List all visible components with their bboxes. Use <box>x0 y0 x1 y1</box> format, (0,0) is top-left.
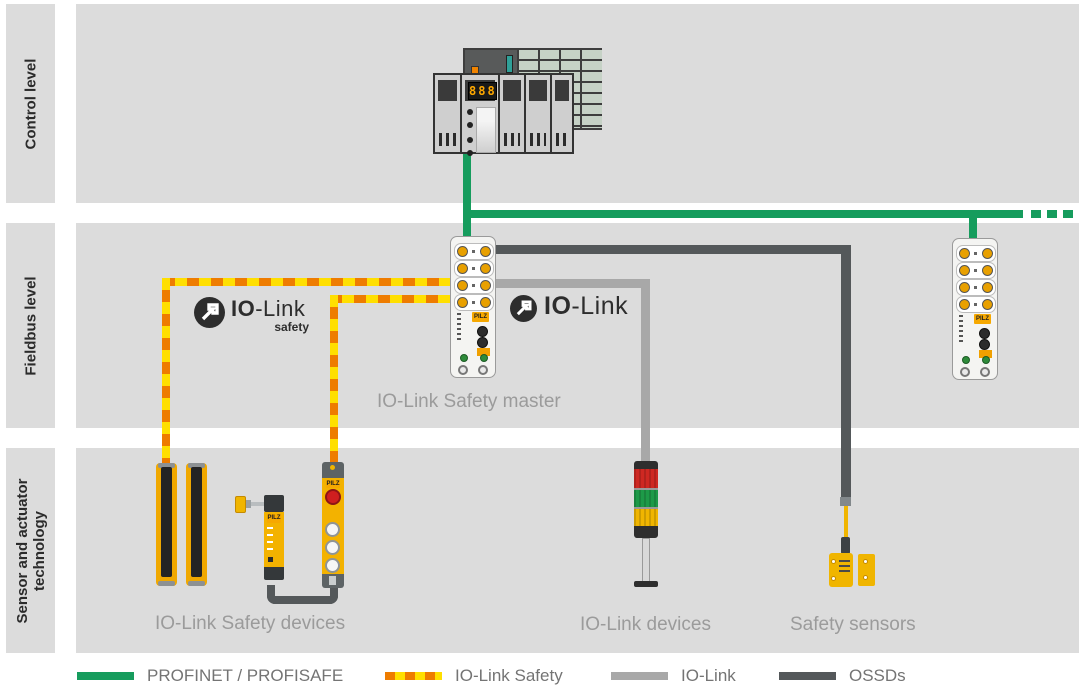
fieldbus-level-label: Fieldbus level <box>22 228 39 423</box>
sensor-mount-hole <box>863 559 868 564</box>
master-bottom-connector <box>478 365 488 375</box>
profinet-trunk-dash-1 <box>1031 210 1041 218</box>
m12-port <box>959 248 970 259</box>
m12-port <box>959 265 970 276</box>
port-glyph <box>472 250 475 253</box>
iolink-safety-line1-vertical <box>162 278 170 464</box>
plc-seven-segment-display: 888 <box>468 82 497 100</box>
master-bottom-connector <box>960 367 970 377</box>
plc-module-header <box>555 80 569 101</box>
estop-white-button <box>325 558 340 573</box>
master-green-port <box>460 354 468 362</box>
plc-front-module-io <box>500 75 526 152</box>
plc-front-module-cpu: 888 <box>462 75 500 152</box>
plc-vent-slots <box>530 133 546 146</box>
plc-vent-slots <box>504 133 520 146</box>
estop-top-cap <box>322 462 344 478</box>
safety-io-module: PILZ <box>264 495 284 585</box>
iolink-safety-logo-sub: safety <box>274 320 309 334</box>
master-rotary-switch <box>477 337 488 348</box>
estop-pushbutton-unit: PILZ <box>322 462 344 588</box>
safety-sensors-label: Safety sensors <box>790 614 916 636</box>
control-level-label: Control level <box>22 6 39 201</box>
estop-red-button <box>325 489 341 505</box>
master-green-port <box>480 354 488 362</box>
estop-cap-led <box>330 465 335 470</box>
signal-tower-base <box>634 526 658 538</box>
m12-port <box>480 263 491 274</box>
m12-port <box>982 299 993 310</box>
iolink-safety-master: PILZ <box>450 236 496 378</box>
plc-back-module <box>580 50 602 128</box>
profinet-trunk-dash-2 <box>1047 210 1057 218</box>
safety-devices-label: IO-Link Safety devices <box>155 613 345 635</box>
plc-module-header: 888 <box>465 80 495 101</box>
m12-port <box>480 297 491 308</box>
light-curtain-emitter <box>186 463 207 586</box>
iolink-logo: IO-Link <box>510 292 630 324</box>
sensor-cable-ring <box>840 497 851 506</box>
master-rotary-switch <box>979 328 990 339</box>
safety-master-label: IO-Link Safety master <box>377 391 561 413</box>
iolink-legend-label: IO-Link <box>681 666 736 686</box>
sensor-label-line <box>839 560 850 562</box>
sensor-label-line <box>839 565 850 567</box>
iolink-safety-logo-icon <box>194 297 225 328</box>
signal-tower-foot <box>634 581 658 587</box>
profinet-legend-swatch <box>77 672 134 680</box>
plc-front-module-io <box>526 75 552 152</box>
master-port-row <box>454 260 494 277</box>
port-glyph <box>974 303 977 306</box>
sidebar-band-control: Control level <box>6 4 55 203</box>
m12-port <box>959 299 970 310</box>
master-port-row <box>454 277 494 294</box>
module-head <box>264 495 284 512</box>
master-rotary-switch <box>979 339 990 350</box>
master-port-row <box>956 279 996 296</box>
ossd-line-horizontal <box>480 245 851 254</box>
profinet-branch-line <box>969 218 977 239</box>
plc-cpu-button <box>467 109 473 115</box>
signal-tower-cap <box>634 461 658 469</box>
ossd-legend-label: OSSDs <box>849 666 906 686</box>
master-bottom-connector <box>980 367 990 377</box>
m12-port <box>457 263 468 274</box>
iolink-safety-master-secondary: PILZ <box>952 238 998 380</box>
plc-vent-slots <box>439 133 457 146</box>
estop-bottom-cap <box>322 574 344 588</box>
plc-rack-front: 888 <box>433 73 574 154</box>
pilz-brand-badge: PILZ <box>326 480 340 488</box>
iolink-safety-line2-vertical <box>330 295 338 464</box>
module-led <box>267 548 273 550</box>
pilz-brand-badge: PILZ <box>974 314 991 324</box>
sensor-plug <box>841 537 850 554</box>
port-glyph <box>974 269 977 272</box>
iolink-line-vertical <box>641 279 650 463</box>
profinet-legend-label: PROFINET / PROFISAFE <box>147 666 343 686</box>
m12-port <box>457 246 468 257</box>
plc-vent-slots <box>556 133 570 146</box>
sensor-label-line <box>839 570 850 572</box>
iolink-logo-text: IO-Link <box>544 292 628 321</box>
plc-memory-card-slot <box>476 107 496 153</box>
master-label-lines <box>959 315 963 345</box>
signal-tower-pole <box>642 538 650 583</box>
sidebar-band-sensor: Sensor and actuator technology <box>6 448 55 653</box>
iolink-line-horizontal <box>480 279 650 288</box>
pilz-brand-badge: PILZ <box>267 514 281 523</box>
architecture-diagram: Control level Fieldbus level Sensor and … <box>0 0 1079 691</box>
master-port-row <box>454 294 494 311</box>
sensor-level-label: Sensor and actuator technology <box>13 461 48 641</box>
port-glyph <box>472 284 475 287</box>
plc-module-header <box>503 80 521 101</box>
m12-port <box>982 248 993 259</box>
curtain-bottom-cap <box>158 581 175 586</box>
safety-sensor-body <box>829 553 853 587</box>
module-foot <box>264 567 284 580</box>
module-button <box>268 557 273 562</box>
estop-connector <box>329 576 336 585</box>
plc-front-module-io <box>552 75 572 152</box>
legend-item-iolink: IO-Link <box>611 666 736 686</box>
iolink-safety-logo: IO-Link safety <box>194 296 309 336</box>
curtain-optics <box>191 467 202 577</box>
m12-port <box>982 265 993 276</box>
mini-sensor-head <box>235 496 246 513</box>
m12-port <box>480 246 491 257</box>
legend-item-iolink-safety: IO-Link Safety <box>385 666 563 686</box>
master-green-port <box>962 356 970 364</box>
master-label-lines <box>457 313 461 343</box>
estop-body: PILZ <box>322 478 344 574</box>
mini-sensor-cable <box>251 502 265 506</box>
iolink-legend-swatch <box>611 672 668 680</box>
master-rotary-switch <box>477 326 488 337</box>
m12-port <box>480 280 491 291</box>
estop-white-button <box>325 540 340 555</box>
m12-port <box>959 282 970 293</box>
pilz-brand-badge: PILZ <box>472 312 489 322</box>
estop-white-button <box>325 522 340 537</box>
io-devices-label: IO-Link devices <box>580 614 711 636</box>
iolink-safety-logo-text: IO-Link <box>231 296 305 322</box>
plc-teal-slot <box>506 55 513 73</box>
module-body: PILZ <box>264 512 284 567</box>
ossd-legend-swatch <box>779 672 836 680</box>
sensor-yellow-cable <box>844 506 848 539</box>
m12-port <box>457 280 468 291</box>
plc-cpu-button <box>467 150 473 156</box>
signal-tower-red-segment <box>634 469 658 488</box>
master-port-row <box>956 296 996 313</box>
sidebar-band-fieldbus: Fieldbus level <box>6 223 55 428</box>
sensor-mount-hole <box>863 575 868 580</box>
plc-module-header <box>438 80 457 101</box>
legend-item-profinet: PROFINET / PROFISAFE <box>77 666 343 686</box>
signal-tower-green-segment <box>634 490 658 507</box>
port-glyph <box>974 252 977 255</box>
iolink-safety-line1-horizontal <box>163 278 460 286</box>
profinet-trunk-line <box>463 210 1023 218</box>
iolink-safety-legend-label: IO-Link Safety <box>455 666 563 686</box>
plc-cpu-button <box>467 122 473 128</box>
curtain-bottom-cap <box>188 581 205 586</box>
profinet-drop-line <box>463 150 471 238</box>
plc-cpu-button <box>467 137 473 143</box>
iolink-safety-legend-swatch <box>385 672 442 680</box>
plc-module-header <box>529 80 547 101</box>
m12-port <box>982 282 993 293</box>
signal-tower-yellow-segment <box>634 509 658 526</box>
port-glyph <box>974 286 977 289</box>
module-led <box>267 534 273 536</box>
sensor-mount-hole <box>831 559 836 564</box>
module-led <box>267 527 273 529</box>
master-green-port <box>982 356 990 364</box>
master-port-row <box>454 243 494 260</box>
master-bottom-connector <box>458 365 468 375</box>
master-port-row <box>956 262 996 279</box>
ossd-line-vertical <box>841 245 851 498</box>
plc-front-module-psu <box>435 75 462 152</box>
module-led <box>267 541 273 543</box>
iolink-safety-line2-horizontal <box>330 295 460 303</box>
light-curtain-receiver <box>156 463 177 586</box>
profinet-trunk-dash-3 <box>1063 210 1073 218</box>
legend-item-ossd: OSSDs <box>779 666 906 686</box>
m12-port <box>457 297 468 308</box>
port-glyph <box>472 301 475 304</box>
iolink-logo-icon <box>510 295 537 322</box>
curtain-optics <box>161 467 172 577</box>
master-port-row <box>956 245 996 262</box>
safety-sensor-actuator <box>858 554 875 586</box>
sensor-mount-hole <box>831 576 836 581</box>
port-glyph <box>472 267 475 270</box>
